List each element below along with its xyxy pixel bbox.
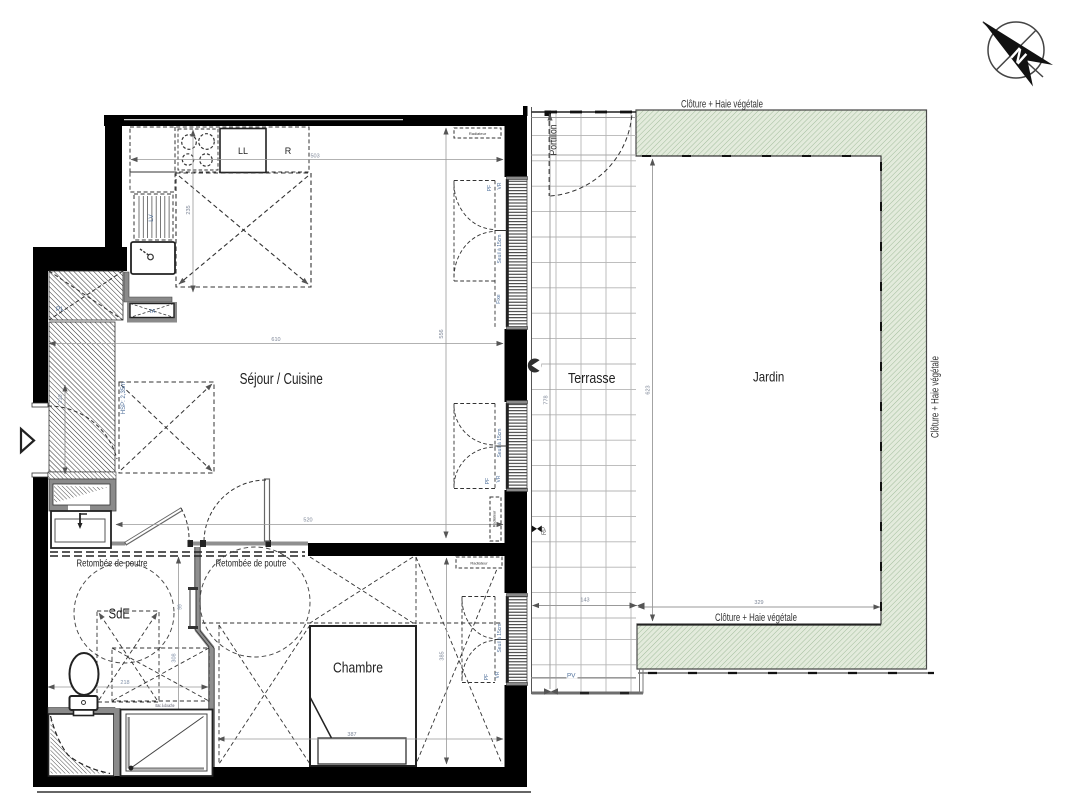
svg-text:PF: PF: [487, 185, 493, 191]
svg-text:Clôture + Haie végétale: Clôture + Haie végétale: [715, 612, 797, 624]
svg-text:Clôture + Haie végétale: Clôture + Haie végétale: [681, 99, 763, 111]
svg-text:Fixe: Fixe: [496, 294, 502, 304]
svg-text:Radiateur: Radiateur: [493, 510, 497, 527]
svg-text:235: 235: [186, 205, 192, 214]
svg-text:Retombée de poutre: Retombée de poutre: [216, 559, 287, 570]
svg-text:520: 520: [303, 518, 312, 524]
svg-text:329: 329: [754, 600, 763, 606]
svg-text:Seuil à 15cm: Seuil à 15cm: [497, 429, 503, 458]
svg-text:PF: PF: [485, 478, 491, 484]
svg-text:PV: PV: [567, 673, 576, 680]
svg-text:Chambre: Chambre: [333, 659, 383, 676]
svg-text:RP: RP: [542, 527, 548, 535]
svg-text:610: 610: [271, 337, 280, 343]
svg-text:VR: VR: [497, 182, 503, 189]
svg-text:556: 556: [439, 329, 445, 338]
svg-text:VR: VR: [495, 671, 501, 678]
svg-text:Seuil à 15cm: Seuil à 15cm: [497, 624, 503, 653]
svg-text:HSP: 2,35m: HSP: 2,35m: [121, 382, 127, 414]
svg-text:Retombée de poutre: Retombée de poutre: [77, 559, 148, 570]
svg-text:PL: PL: [56, 306, 64, 313]
svg-text:VR: VR: [496, 475, 502, 482]
svg-text:R: R: [285, 146, 292, 156]
svg-text:TA: TA: [149, 309, 156, 315]
svg-text:PF: PF: [484, 674, 490, 680]
svg-text:Radiateur: Radiateur: [470, 561, 488, 566]
svg-text:387: 387: [347, 732, 356, 738]
svg-text:99: 99: [178, 604, 184, 610]
svg-text:LV: LV: [148, 214, 155, 222]
svg-text:385: 385: [440, 651, 446, 660]
svg-text:Terrasse: Terrasse: [568, 370, 616, 387]
svg-text:Seuil à 15cm: Seuil à 15cm: [497, 235, 503, 264]
svg-text:623: 623: [646, 385, 652, 394]
svg-text:Séjour / Cuisine: Séjour / Cuisine: [240, 371, 323, 388]
svg-text:778: 778: [544, 395, 550, 404]
svg-text:SdE: SdE: [109, 606, 131, 623]
svg-text:Bac à douche: Bac à douche: [156, 703, 175, 708]
svg-text:210: 210: [58, 394, 64, 403]
svg-text:143: 143: [580, 598, 589, 604]
svg-text:503: 503: [311, 154, 320, 160]
svg-text:LL: LL: [238, 146, 248, 156]
svg-text:Jardin: Jardin: [753, 369, 784, 385]
svg-text:Radiateur: Radiateur: [469, 131, 487, 136]
svg-text:Clôture + Haie végétale: Clôture + Haie végétale: [930, 356, 942, 438]
svg-text:218: 218: [120, 680, 129, 686]
svg-text:308: 308: [172, 653, 178, 662]
